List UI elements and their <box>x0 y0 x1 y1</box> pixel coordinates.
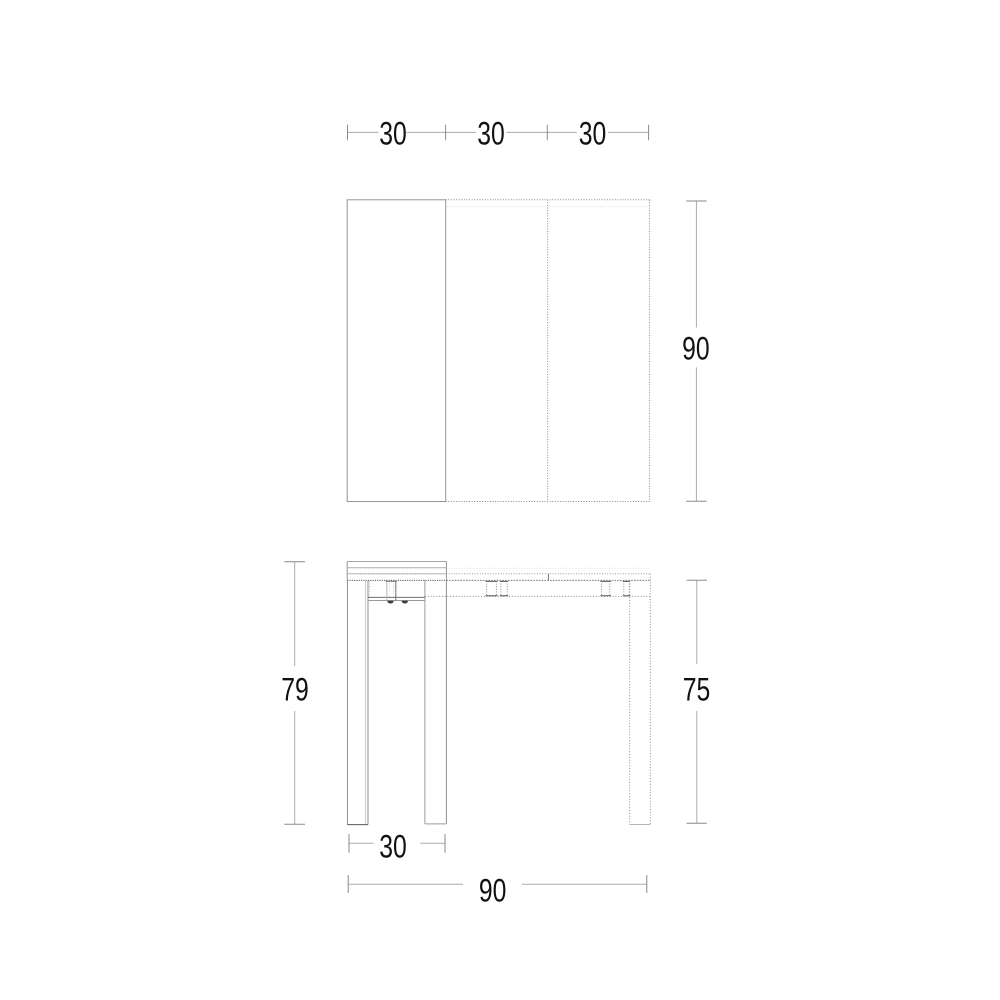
svg-text:75: 75 <box>683 672 711 708</box>
svg-text:90: 90 <box>479 872 507 908</box>
svg-text:30: 30 <box>379 115 407 151</box>
svg-text:30: 30 <box>379 829 407 865</box>
svg-text:30: 30 <box>579 115 607 151</box>
svg-text:30: 30 <box>477 115 505 151</box>
svg-text:90: 90 <box>682 331 710 367</box>
svg-text:79: 79 <box>281 672 309 708</box>
